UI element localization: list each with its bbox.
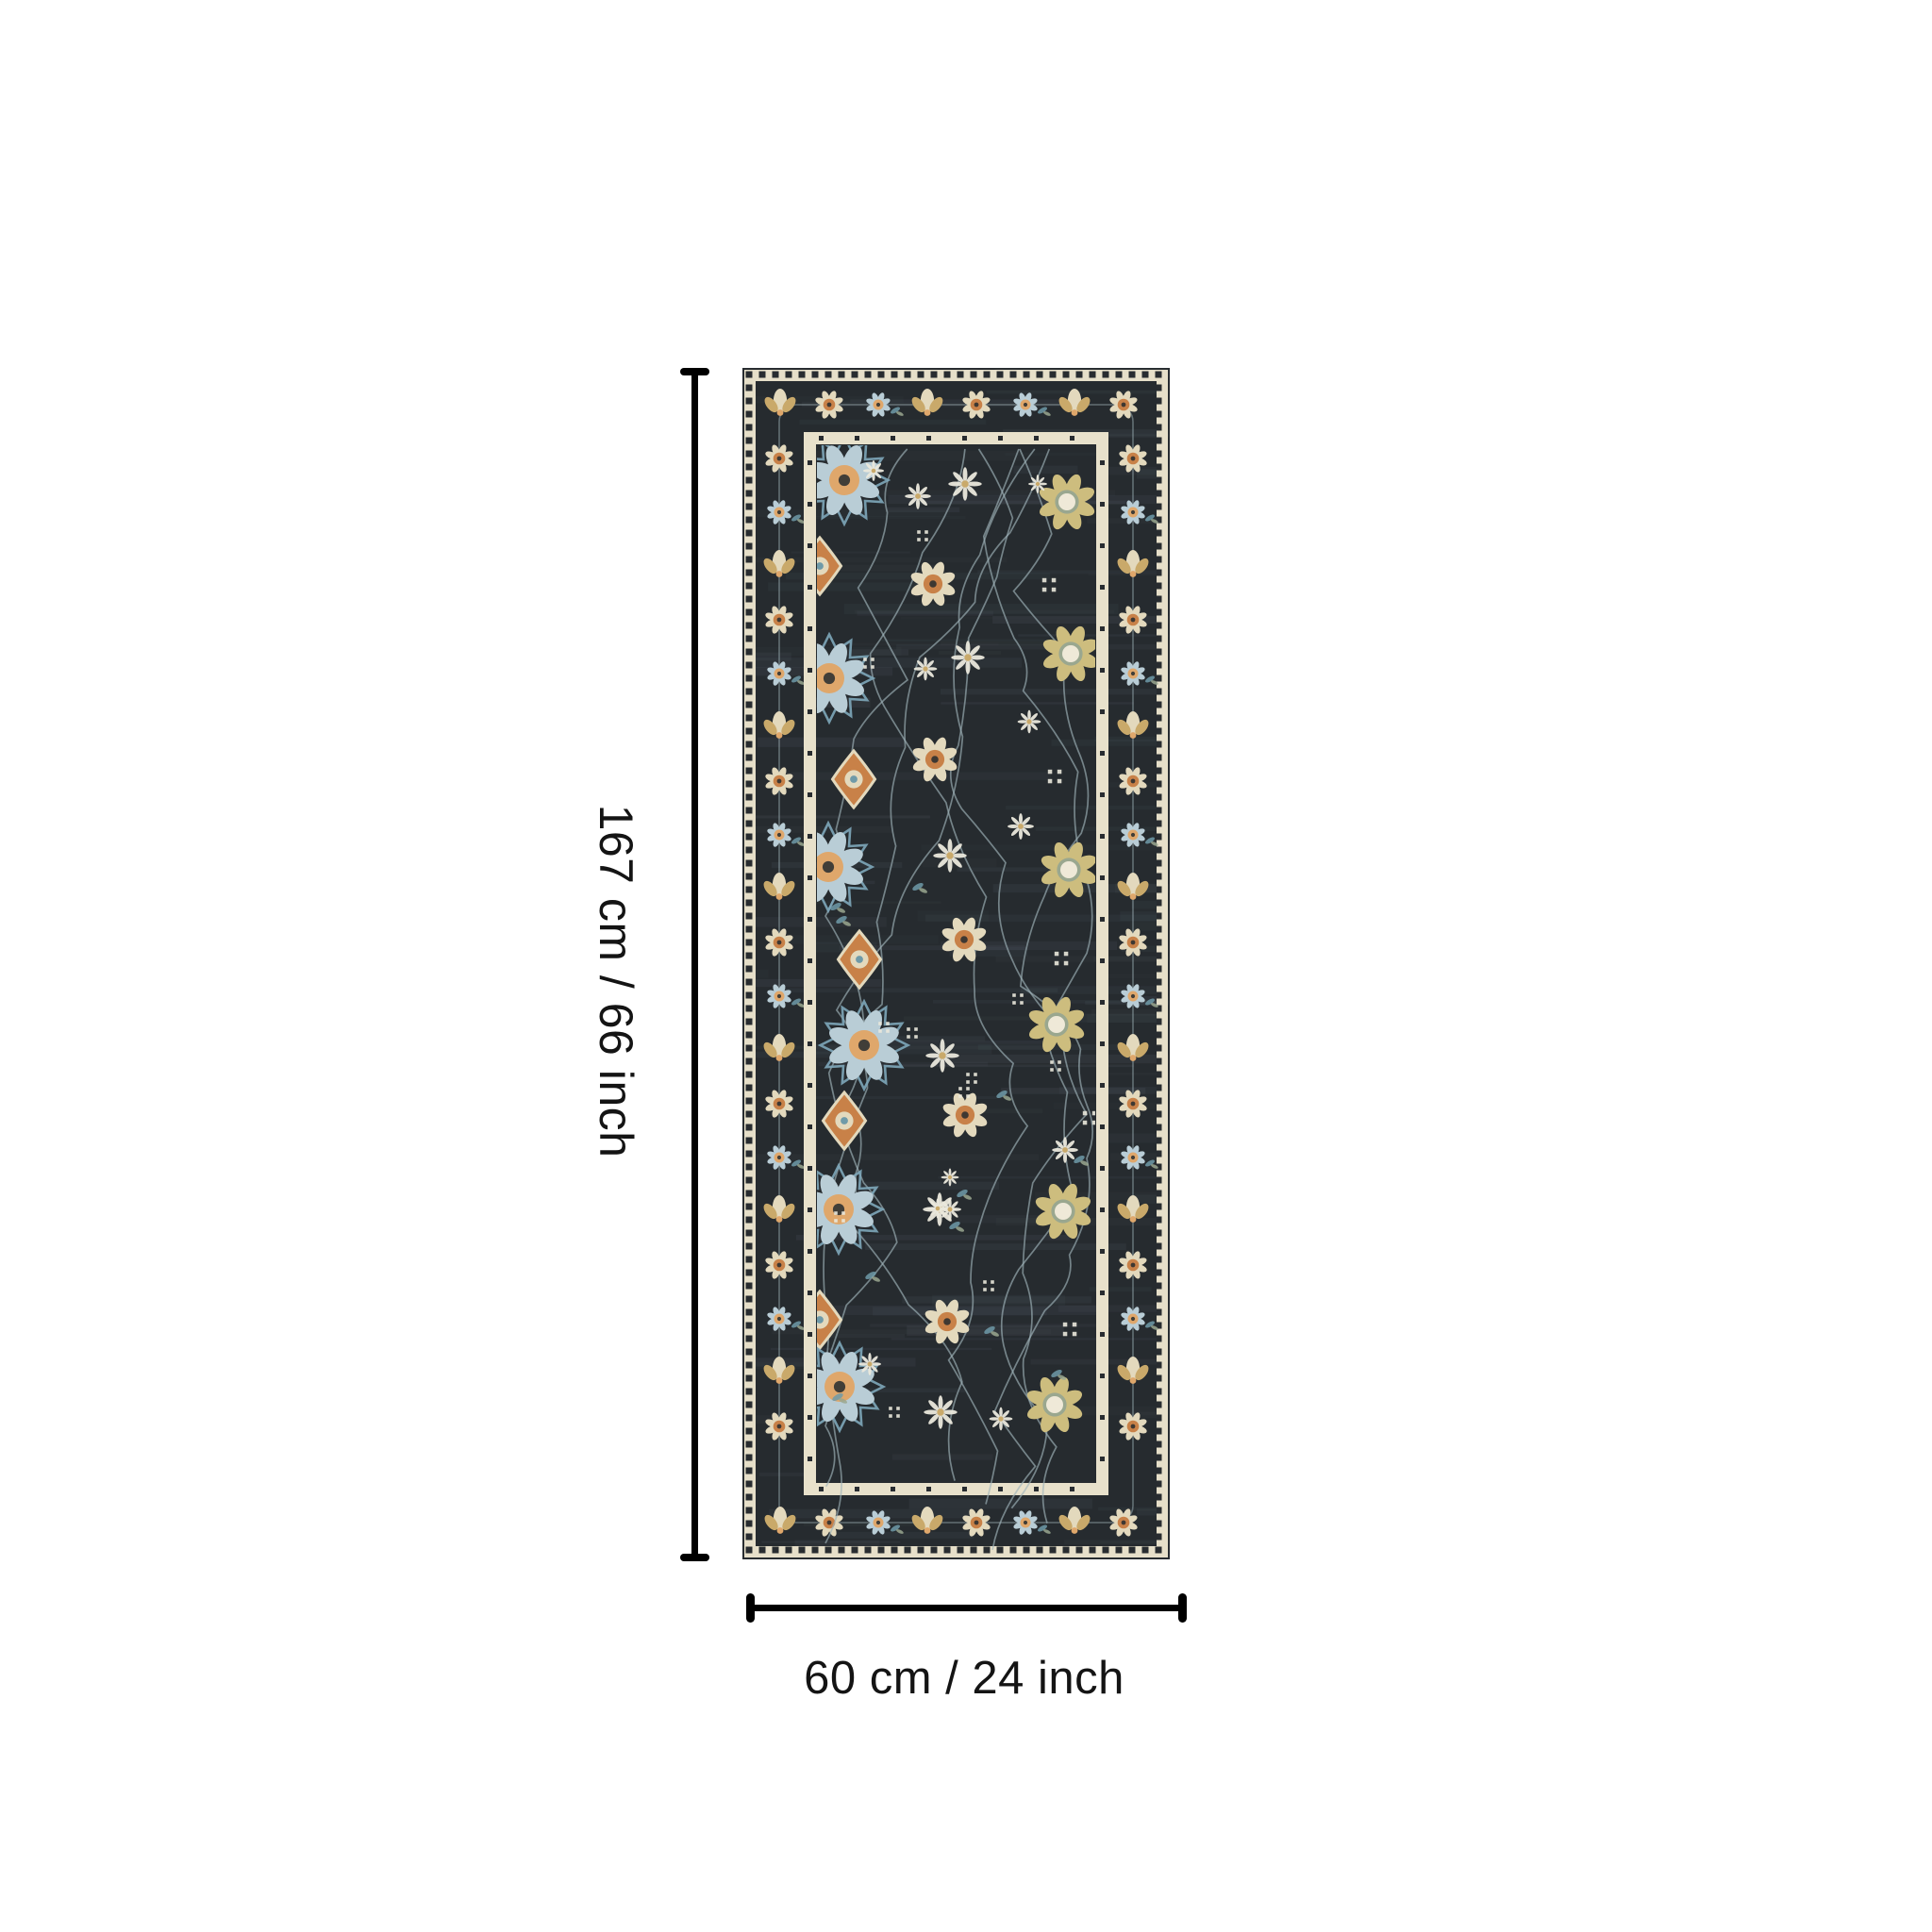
height-line-shaft [691, 371, 698, 1558]
width-line-right-cap [1178, 1593, 1187, 1623]
height-dimension-label: 167 cm / 66 inch [589, 805, 643, 1158]
width-line-shaft [749, 1605, 1184, 1611]
height-dimension-line [680, 368, 709, 1561]
rug-graphic [742, 368, 1170, 1559]
product-dimension-diagram: 167 cm / 66 inch 60 cm / 24 inch [0, 0, 1932, 1932]
rug-image [742, 368, 1170, 1559]
width-dimension-label: 60 cm / 24 inch [804, 1652, 1124, 1705]
height-line-bottom-cap [680, 1554, 709, 1561]
width-dimension-line [746, 1593, 1187, 1623]
